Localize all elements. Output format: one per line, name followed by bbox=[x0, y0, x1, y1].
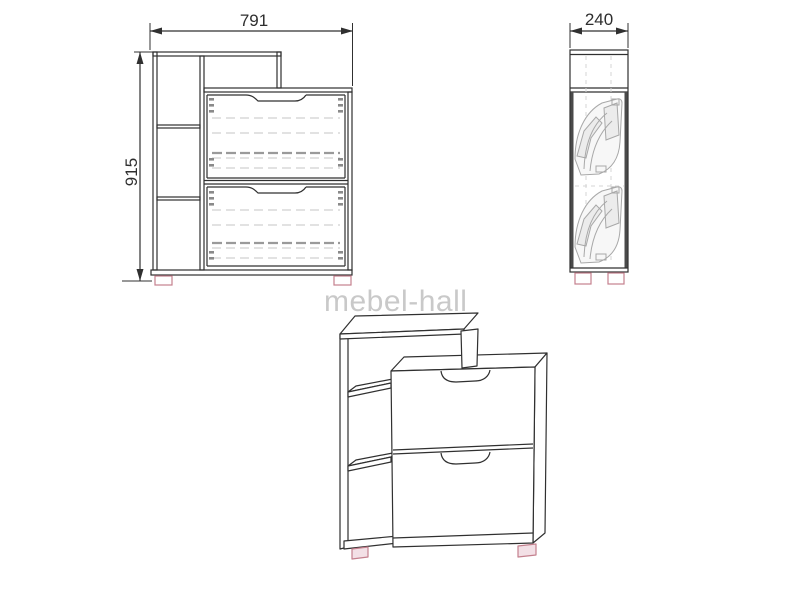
drawer-flap-bottom bbox=[207, 187, 345, 266]
top-shelf-board bbox=[153, 52, 281, 56]
hidden-lines bbox=[212, 210, 340, 258]
bottom-board bbox=[151, 270, 352, 275]
left-side-panel bbox=[153, 52, 157, 270]
height-dimension-label: 915 bbox=[123, 144, 143, 200]
shelf-2 bbox=[157, 197, 200, 200]
cabinet-front-3d bbox=[391, 367, 535, 547]
shelf-1 bbox=[157, 125, 200, 128]
foot-3d bbox=[352, 547, 368, 559]
middle-partition bbox=[200, 56, 204, 270]
depth-dimension-label: 240 bbox=[571, 11, 627, 28]
foot-marker bbox=[608, 273, 624, 284]
left-side-panel-3d bbox=[340, 332, 348, 549]
top-end-panel-3d bbox=[461, 329, 478, 368]
width-dimension bbox=[150, 23, 353, 86]
watermark-text: mebel-hall bbox=[324, 285, 494, 319]
dark-edge bbox=[625, 92, 628, 268]
bottom-board-3d bbox=[344, 536, 398, 549]
foot-marker bbox=[334, 276, 351, 285]
foot-3d bbox=[518, 544, 536, 557]
width-dimension-label: 791 bbox=[226, 12, 282, 29]
drawer-flap-top bbox=[207, 95, 345, 178]
foot-marker bbox=[575, 273, 591, 284]
handle-notch bbox=[246, 95, 306, 101]
perspective-view-drawing bbox=[340, 313, 547, 559]
side-view-drawing bbox=[570, 23, 628, 284]
right-side-panel bbox=[348, 92, 352, 270]
handle-notch bbox=[246, 187, 306, 193]
top-end-panel bbox=[277, 52, 281, 88]
cabinet-top-board bbox=[204, 88, 352, 92]
front-view-drawing bbox=[122, 23, 353, 285]
technical-drawing-canvas: 791 915 240 mebel-hall bbox=[0, 0, 800, 600]
hidden-lines bbox=[212, 118, 340, 168]
foot-marker bbox=[155, 276, 172, 285]
dark-edge bbox=[571, 92, 574, 268]
